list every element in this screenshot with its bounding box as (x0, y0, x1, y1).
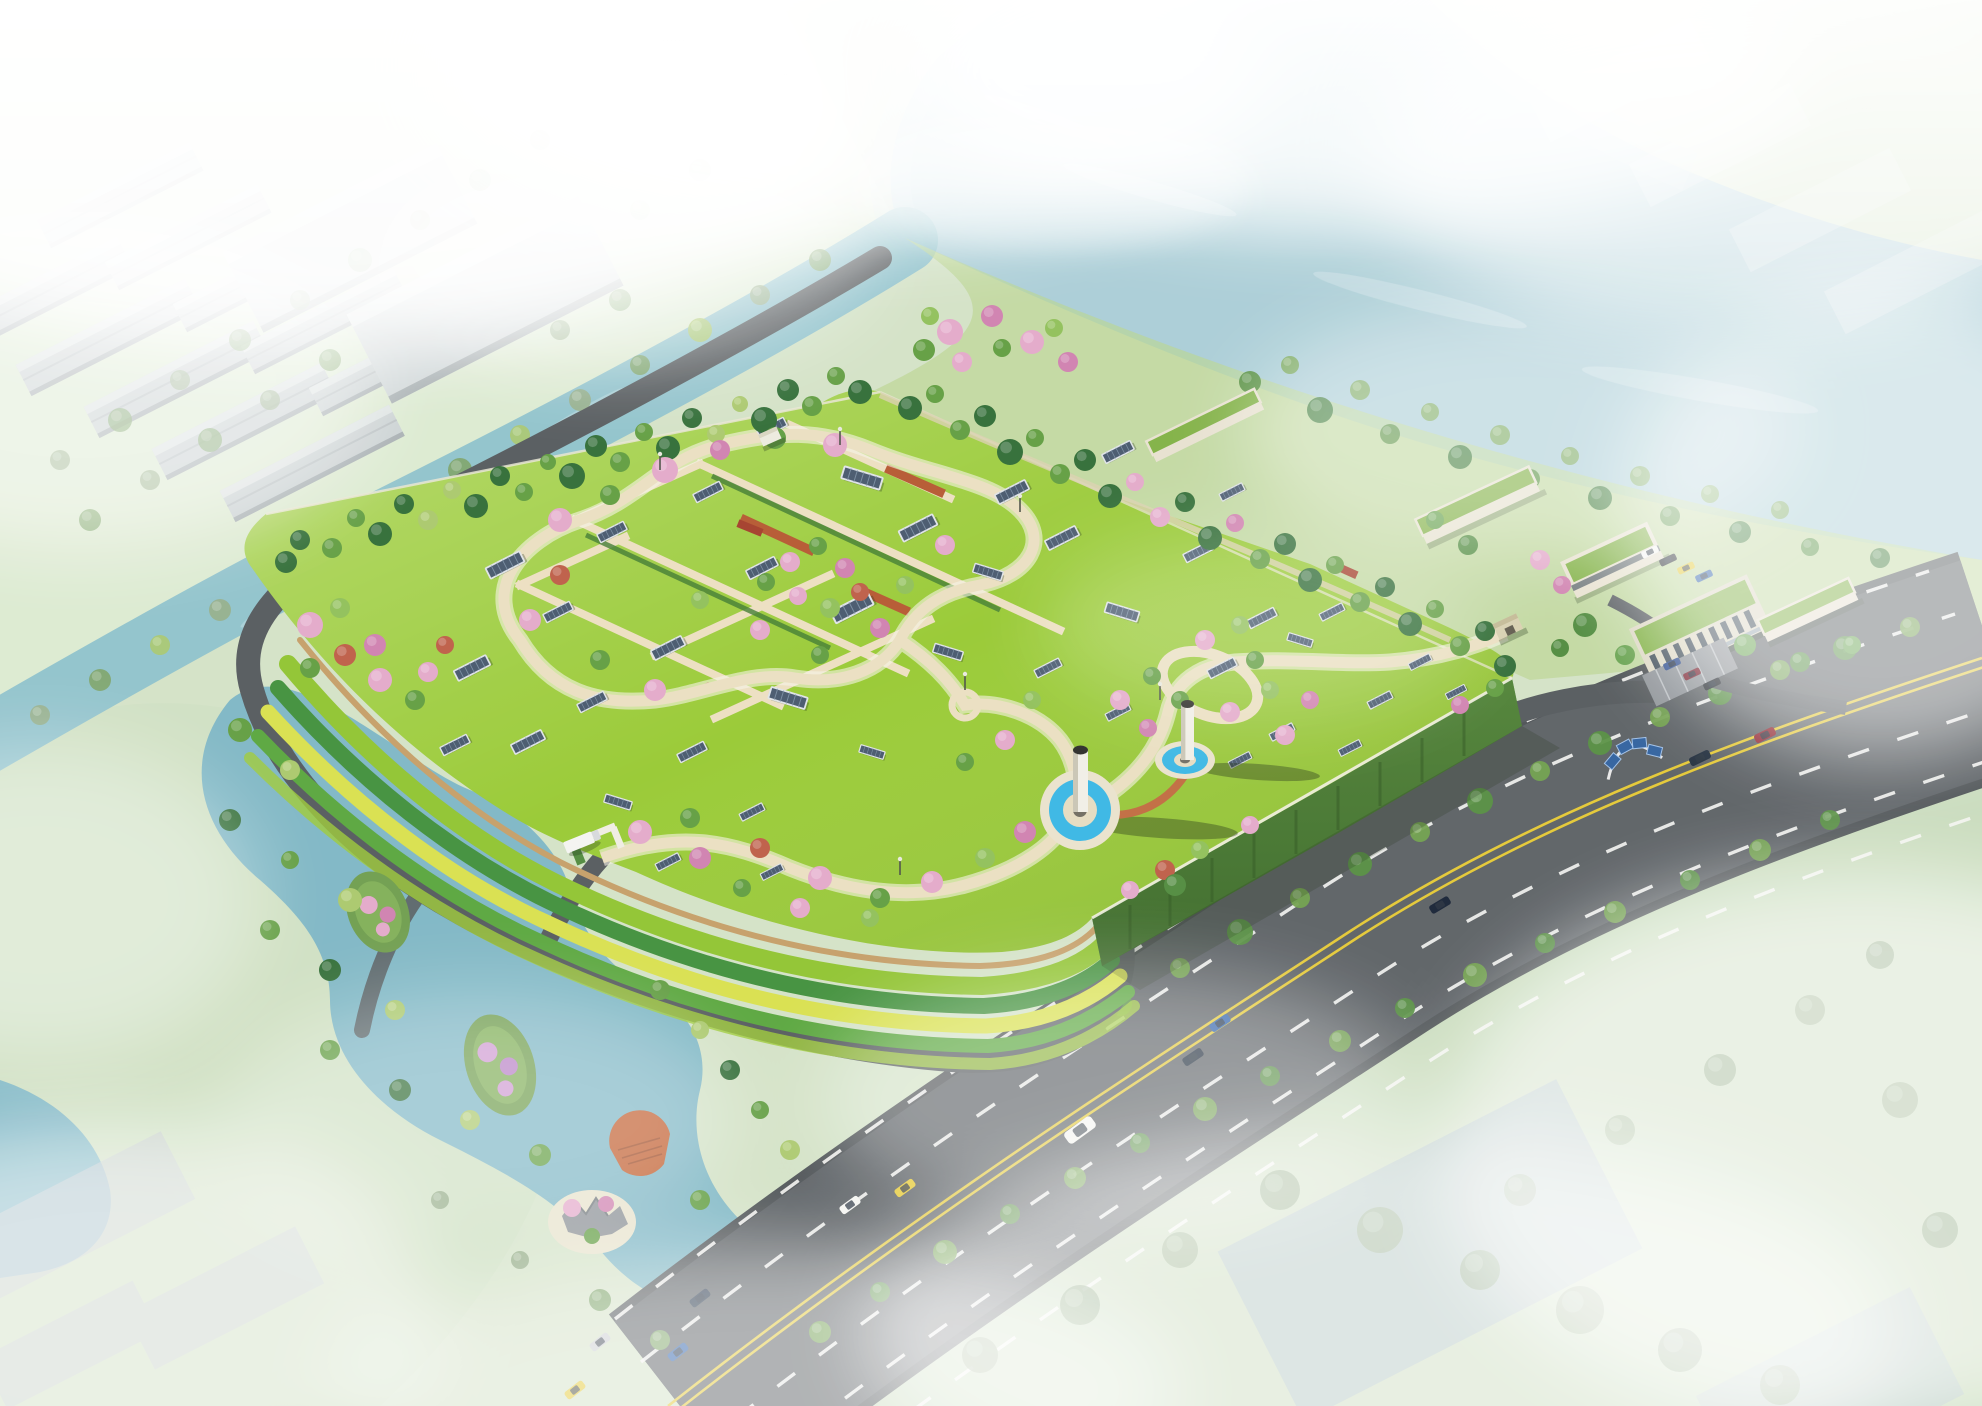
rendering-canvas (0, 0, 1982, 1406)
mist-layer (0, 0, 1982, 1406)
